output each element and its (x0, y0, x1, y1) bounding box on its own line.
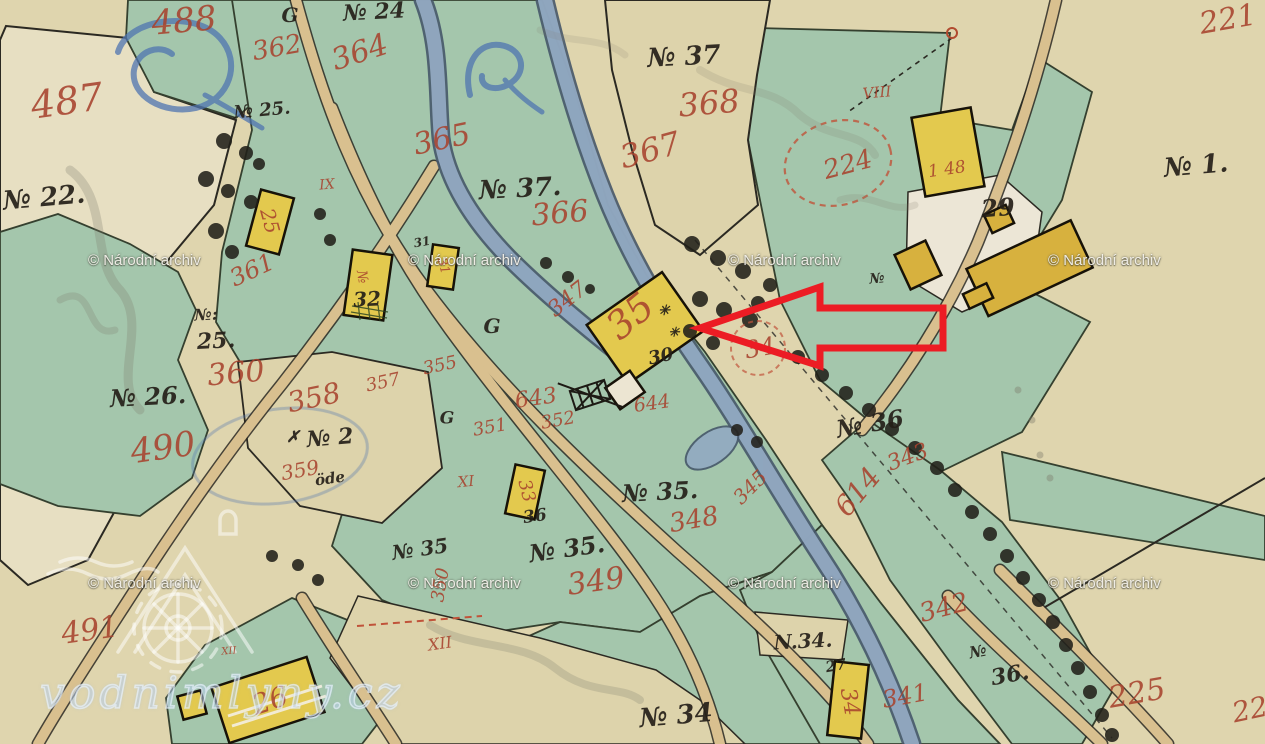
annotation-layer (0, 0, 1265, 744)
map-canvas: © Národní archiv© Národní archiv© Národn… (0, 0, 1265, 744)
highlight-arrow (700, 287, 943, 366)
